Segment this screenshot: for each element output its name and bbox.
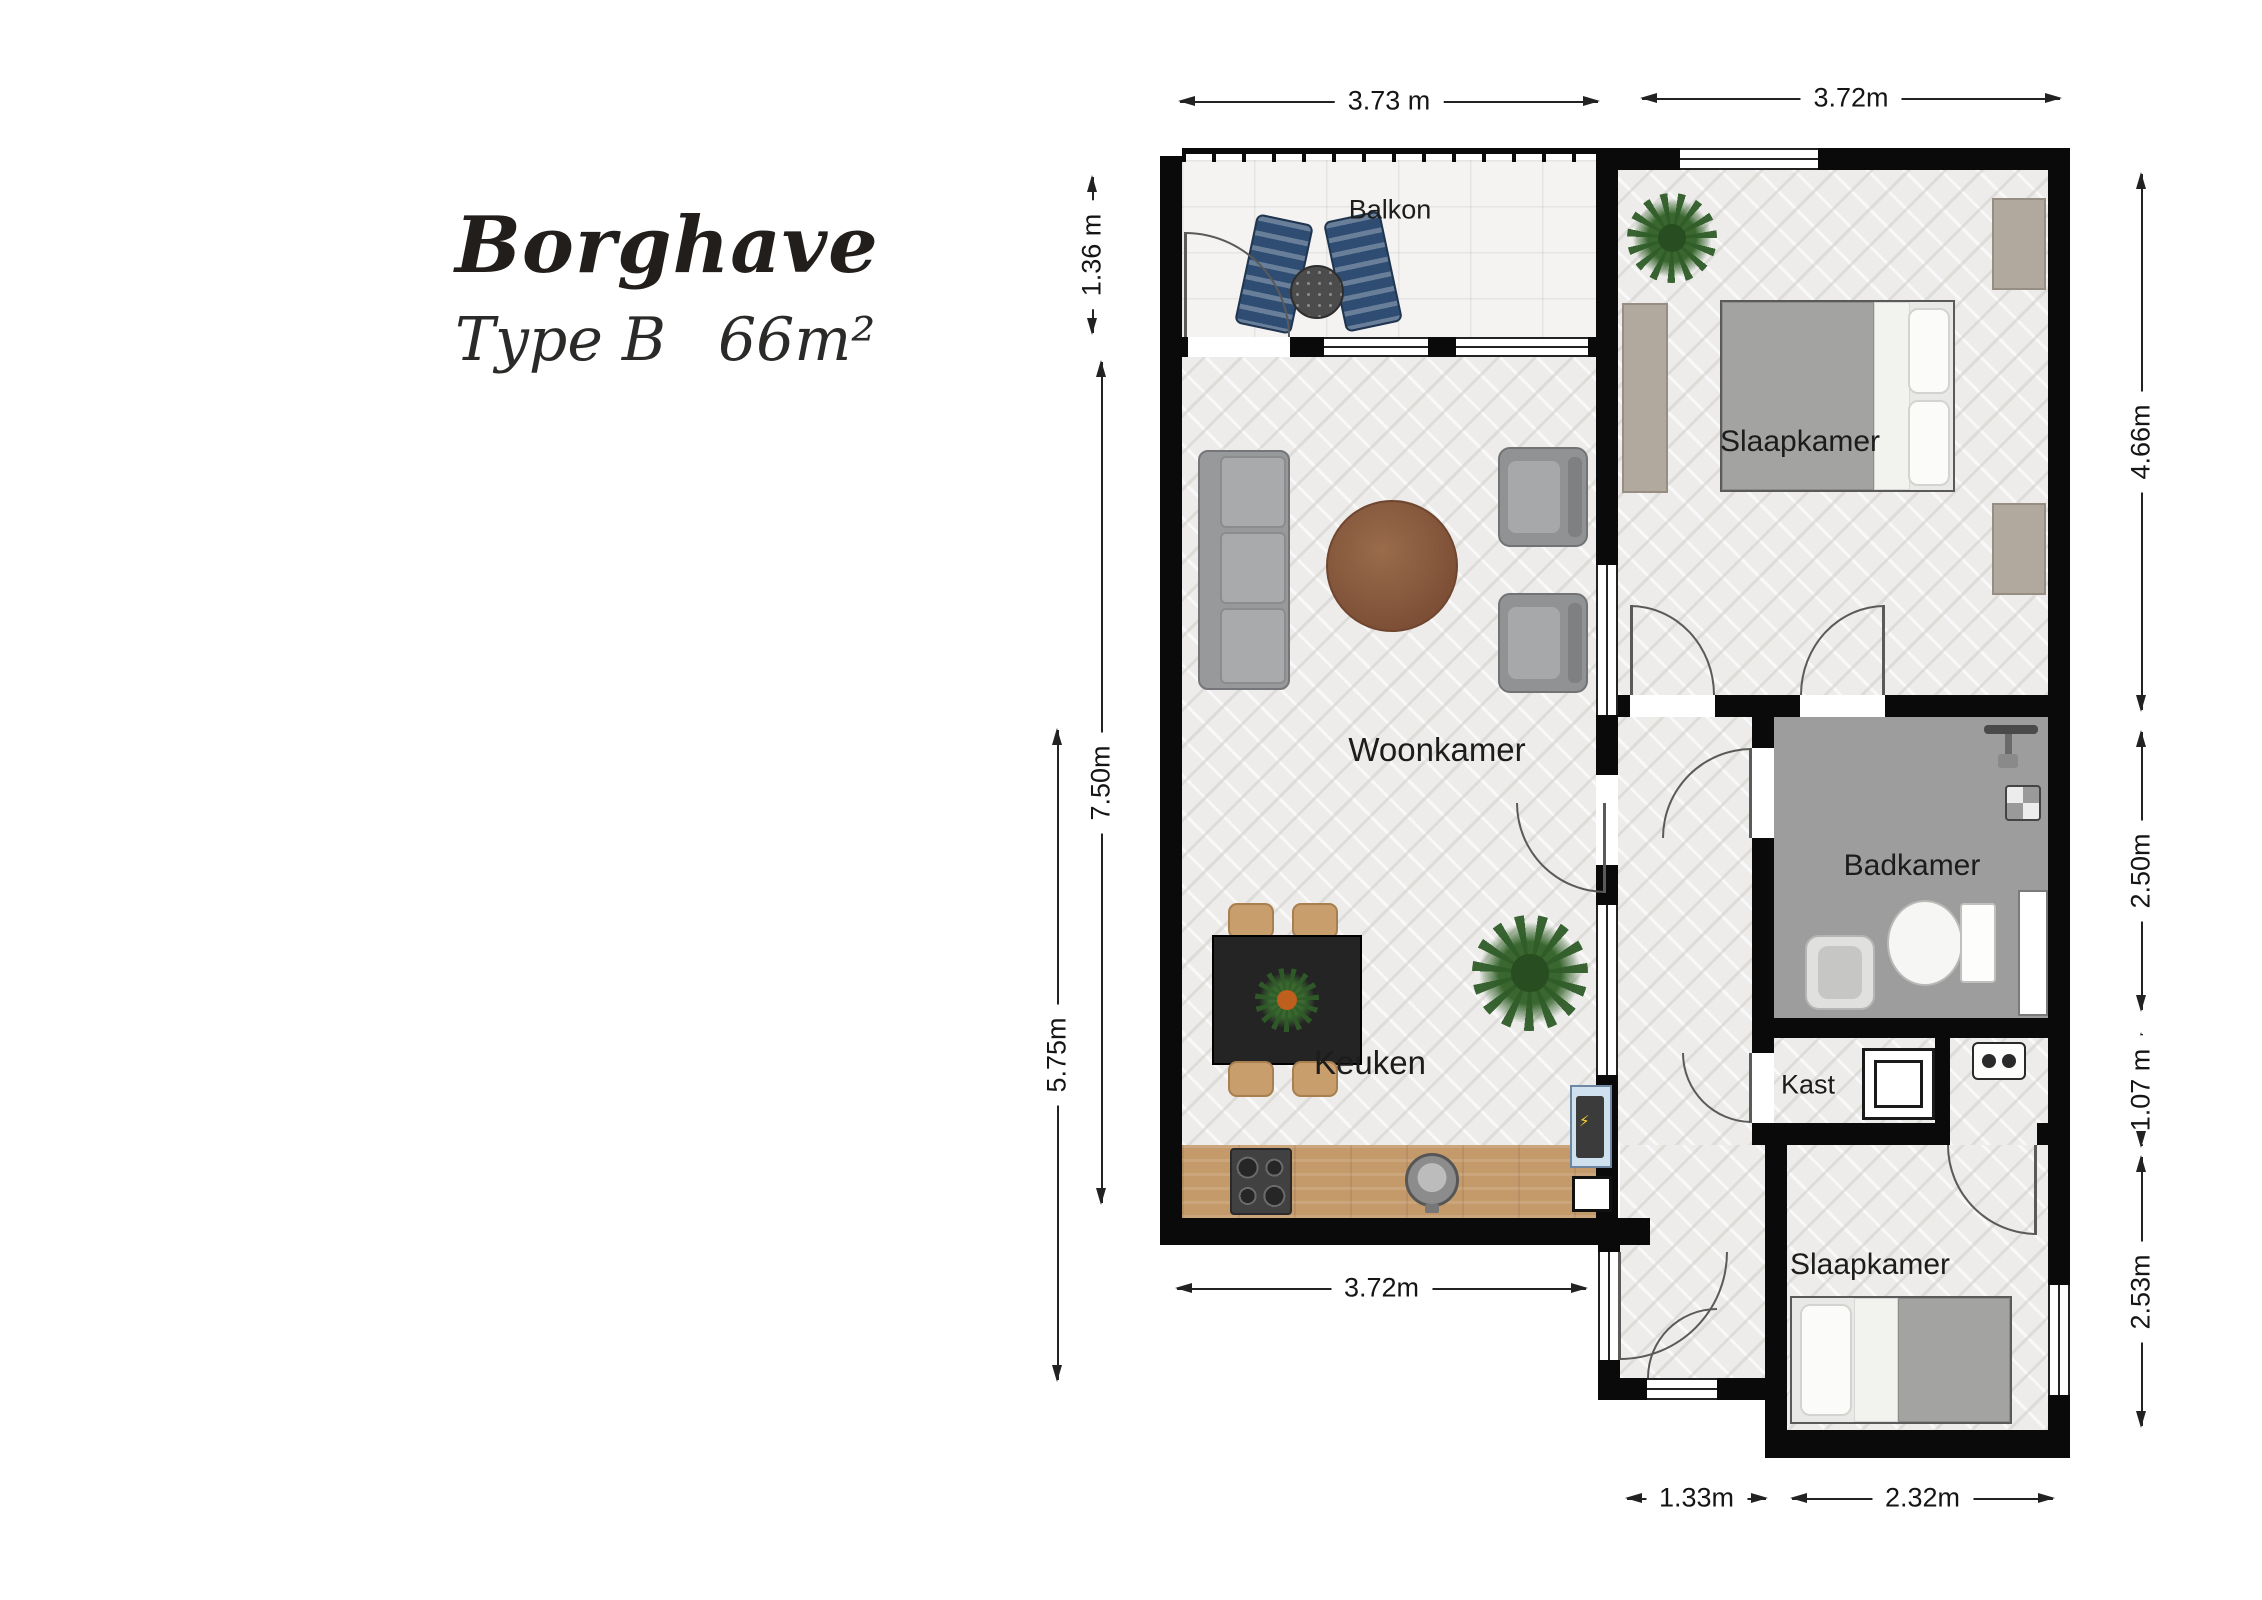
bedroom2-door-leaf (2034, 1145, 2037, 1235)
wall-bedroom2-bottom (1765, 1430, 2070, 1458)
bedroom1-door-leaf-left (1630, 605, 1633, 695)
room-label-kast: Kast (1781, 1070, 1835, 1101)
wall-balcony-b (1290, 337, 1324, 357)
bedroom2-blanket (1898, 1298, 2010, 1422)
dim-left-balcony: 1.36 m (1080, 175, 1104, 335)
room-label-slaapkamer-2: Slaapkamer (1790, 1248, 1950, 1282)
toilet-tank (1960, 903, 1996, 983)
ventilation-fan-icon (2005, 785, 2041, 821)
dim-label: 7.50m (1086, 732, 1117, 833)
subtitle: Type B 66m² (455, 305, 879, 375)
wall-top-right-a (1612, 148, 1680, 170)
bedroom1-nightstand-top (1992, 198, 2046, 290)
bedroom2-window (2048, 1285, 2070, 1395)
dim-right-bathroom: 2.50m (2129, 730, 2153, 1012)
wall-bed1-a (1618, 695, 1630, 717)
wall-balcony-c (1428, 337, 1456, 357)
lower-niche (1572, 1176, 1612, 1212)
dim-left-living: 7.50m (1089, 360, 1113, 1205)
dim-label: 1.33m (1646, 1483, 1747, 1514)
wall-closet-bottom-a (1752, 1123, 1950, 1145)
living-door-leaf (1603, 803, 1606, 893)
entrance-door-leaf (1618, 1252, 1621, 1360)
bathroom-door-leaf (1749, 748, 1752, 838)
room-label-woonkamer: Woonkamer (1348, 731, 1525, 769)
type-label: Type B (455, 305, 666, 375)
balcony-window-1 (1324, 337, 1428, 357)
dim-top-balcony: 3.73 m (1178, 89, 1600, 113)
sofa-cushion-2 (1220, 532, 1286, 604)
dim-bottom-bedroom2: 2.32m (1790, 1486, 2055, 1510)
dim-label: 5.75m (1042, 1004, 1073, 1105)
coffee-table (1326, 500, 1458, 632)
room-label-slaapkamer-1: Slaapkamer (1720, 425, 1880, 459)
shower-partition (2018, 890, 2048, 1016)
bedroom1-dresser-left (1622, 303, 1668, 493)
wall-closet-bottom-b (2037, 1123, 2070, 1145)
dim-label: 2.50m (2126, 820, 2157, 921)
closet-door-leaf (1749, 1053, 1752, 1123)
wall-bed1-b (1715, 695, 1800, 717)
bedroom1-window (1680, 148, 1818, 170)
toilet-bowl (1887, 900, 1963, 986)
wall-center-b (1596, 715, 1618, 775)
balcony-railing (1182, 148, 1618, 162)
wall-bath-bottom (1774, 1018, 2070, 1038)
stove (1230, 1148, 1292, 1215)
wall-bed1-c (1885, 695, 2070, 717)
dim-label: 2.32m (1872, 1483, 1973, 1514)
dim-label: 3.73 m (1335, 86, 1444, 117)
wall-bedroom2-left (1765, 1145, 1787, 1458)
dim-label: 2.53m (2126, 1241, 2157, 1342)
bathroom-sink (1805, 935, 1875, 1010)
dim-label: 1.36 m (1077, 201, 1108, 310)
table-plant (1255, 968, 1319, 1032)
dim-bottom-hall: 1.33m (1625, 1486, 1768, 1510)
balcony-window-2 (1456, 337, 1588, 357)
bedroom1-plant (1627, 193, 1717, 283)
interior-window-2 (1596, 905, 1618, 1075)
wall-hall-bottom-b (1717, 1378, 1787, 1400)
bedroom2-pillow (1800, 1304, 1852, 1416)
boiler-unit (1576, 1096, 1604, 1158)
dim-bottom-kitchen: 3.72m (1175, 1276, 1588, 1300)
dining-chair-2 (1292, 903, 1338, 939)
area-label: 66m² (718, 305, 875, 375)
bedroom1-door-leaf-right (1882, 605, 1885, 695)
dining-chair-1 (1228, 903, 1274, 939)
bedroom2-sheet (1854, 1298, 1898, 1422)
dining-chair-3 (1228, 1061, 1274, 1097)
entrance-sidelight (1598, 1252, 1620, 1360)
kitchen-plant (1472, 915, 1588, 1031)
sofa-cushion-1 (1220, 456, 1286, 528)
dim-label: 4.66m (2126, 391, 2157, 492)
wall-center-a (1596, 148, 1618, 565)
shower-hose-icon (2005, 734, 2012, 756)
dim-label: 3.72m (1331, 1273, 1432, 1304)
room-label-keuken: Keuken (1314, 1044, 1426, 1082)
room-label-balkon: Balkon (1349, 195, 1432, 226)
dim-left-kitchen: 5.75m (1045, 728, 1069, 1382)
wall-right-outer (2048, 148, 2070, 1458)
wall-hall-bottom-a (1598, 1378, 1647, 1400)
dim-label: 1.07 m (2126, 1036, 2157, 1145)
dim-top-bedroom: 3.72m (1640, 86, 2062, 110)
interior-window-1 (1596, 565, 1618, 715)
dim-right-closet: 1.07 m (2129, 1032, 2153, 1148)
dim-right-bedroom1: 4.66m (2129, 172, 2153, 712)
balcony-table (1290, 265, 1344, 319)
wall-balcony-a (1182, 337, 1188, 357)
kitchen-sink (1405, 1153, 1459, 1207)
sofa-cushion-3 (1220, 608, 1286, 684)
bedroom1-sheet (1874, 302, 1910, 490)
armchair-1 (1498, 447, 1588, 547)
title-block: Borghave Type B 66m² (455, 200, 879, 375)
floor-plan: Balkon Slaapkamer Woonkamer Keuken Badka… (1160, 148, 2070, 1460)
bedroom1-pillow-1 (1908, 308, 1950, 394)
wall-left-outer (1160, 156, 1182, 1245)
kitchen-faucet (1425, 1204, 1439, 1213)
room-label-badkamer: Badkamer (1844, 849, 1981, 883)
washing-machine-icon (1862, 1048, 1935, 1120)
hall-window (1647, 1378, 1717, 1400)
ventilation-box-icon (1972, 1042, 2026, 1080)
dim-right-bedroom2: 2.53m (2129, 1155, 2153, 1428)
wall-bath-b (1752, 838, 1774, 1053)
page-title: Borghave (455, 200, 879, 291)
shower-head-icon (1998, 754, 2018, 768)
wall-bath-a (1752, 717, 1774, 748)
bedroom1-blanket (1722, 302, 1874, 490)
armchair-2 (1498, 593, 1588, 693)
wall-bottom-left-wing (1160, 1218, 1650, 1245)
dim-label: 3.72m (1800, 83, 1901, 114)
balcony-door-leaf (1184, 232, 1187, 337)
bedroom1-nightstand-bottom (1992, 503, 2046, 595)
shower-mixer-icon (1984, 725, 2038, 734)
wall-top-right-b (1818, 148, 2070, 170)
wall-hall-left-a (1598, 1245, 1620, 1252)
bedroom1-pillow-2 (1908, 400, 1950, 486)
